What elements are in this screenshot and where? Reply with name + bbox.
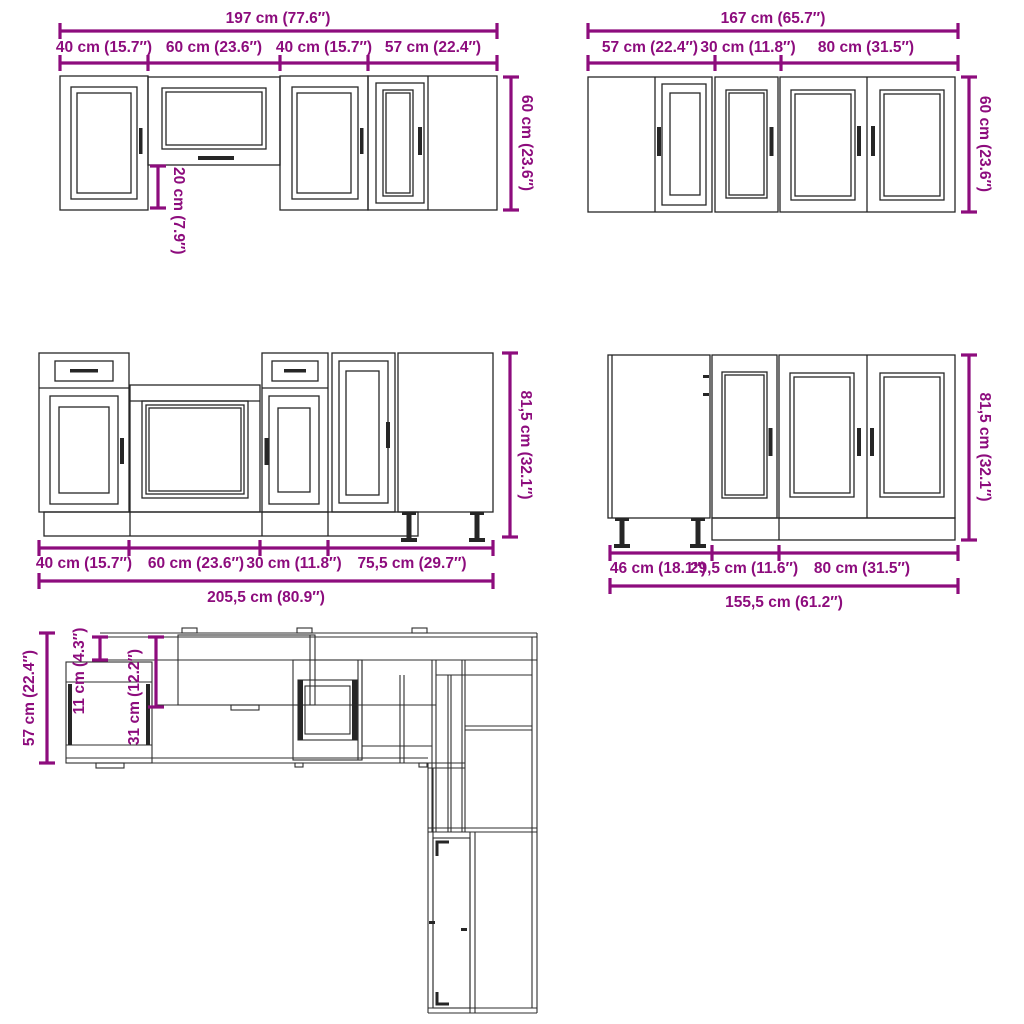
total-width-label: 197 cm (77.6″) (226, 10, 331, 27)
door-handle (386, 422, 390, 448)
base-corner-blind-panel (608, 355, 710, 518)
wall-corner-cabinet-outline (368, 76, 497, 210)
door-handle (360, 128, 364, 154)
door-handle (769, 428, 773, 456)
plinth (712, 518, 955, 540)
plan-wall-cabinet-60 (178, 635, 315, 705)
base-run-right-dimensions: 46 cm (18.1″) 29,5 cm (11.6″) 80 cm (31.… (610, 355, 993, 611)
segment-width-label: 40 cm (15.7″) (276, 39, 372, 56)
door-handle (418, 127, 422, 155)
door-handle (871, 126, 875, 156)
base-run-right-cabinets (608, 355, 955, 548)
door-handle (857, 126, 861, 156)
wall-cabinet-60-outline (148, 77, 280, 165)
door-handle (657, 127, 661, 156)
wall-cabinet-40b-outline (280, 76, 368, 210)
flap-handle (198, 156, 234, 160)
door-handle (139, 128, 143, 154)
segment-width-label: 30 cm (11.8″) (246, 555, 341, 572)
segment-width-label: 75,5 cm (29.7″) (357, 555, 466, 572)
door-handle (870, 428, 874, 456)
drawer-handle (70, 369, 98, 373)
wall-corner-cabinet-outline (588, 77, 712, 212)
height-label: 60 cm (23.6″) (976, 96, 993, 192)
segment-width-label: 40 cm (15.7″) (36, 555, 132, 572)
plan-wall-depth-label: 31 cm (12.2″) (126, 649, 143, 745)
under-cabinet-gap-label: 20 cm (7.9″) (170, 167, 187, 255)
door-handle (265, 438, 269, 465)
wall-run-left-cabinets (60, 76, 497, 210)
floor-plan-dimensions: 57 cm (22.4″) 11 cm (4.3″) 31 cm (12.2″) (21, 628, 164, 763)
plan-wall-offset-label: 11 cm (4.3″) (71, 628, 88, 715)
segment-width-label: 29,5 cm (11.6″) (690, 560, 798, 577)
plan-depth-label: 57 cm (22.4″) (21, 650, 38, 746)
segment-width-label: 60 cm (23.6″) (148, 555, 244, 572)
door-handle (120, 438, 124, 464)
wall-run-right-cabinets (588, 77, 955, 212)
segment-width-label: 57 cm (22.4″) (385, 39, 481, 56)
base-run-left-dimensions: 40 cm (15.7″) 60 cm (23.6″) 30 cm (11.8″… (36, 353, 534, 606)
drawer-handle (284, 369, 306, 373)
height-label: 60 cm (23.6″) (518, 95, 535, 191)
segment-width-label: 40 cm (15.7″) (56, 39, 152, 56)
plan-bottom-cabinet-door (433, 838, 470, 1008)
segment-width-label: 60 cm (23.6″) (166, 39, 262, 56)
height-label: 81,5 cm (32.1″) (517, 390, 534, 499)
total-width-label: 205,5 cm (80.9″) (207, 589, 325, 606)
total-width-label: 155,5 cm (61.2″) (725, 594, 843, 611)
wall-cabinet-40-outline (60, 76, 148, 210)
door-handle (770, 127, 774, 156)
height-label: 81,5 cm (32.1″) (976, 392, 993, 501)
base-cabinet-door-outline (332, 353, 395, 512)
base-corner-blind-panel (398, 353, 493, 512)
adjustable-feet (614, 518, 706, 548)
plinth (44, 512, 418, 536)
diagram-canvas: 197 cm (77.6″) 40 cm (15.7″) 60 cm (23.6… (0, 0, 1024, 1024)
total-width-label: 167 cm (65.7″) (721, 10, 826, 27)
segment-width-label: 30 cm (11.8″) (700, 39, 795, 56)
segment-width-label: 80 cm (31.5″) (814, 560, 910, 577)
base-cabinet-40-outline (39, 353, 129, 512)
adjustable-feet (401, 512, 485, 542)
segment-width-label: 80 cm (31.5″) (818, 39, 914, 56)
base-run-left-cabinets (39, 353, 493, 542)
wall-run-left-dimensions: 197 cm (77.6″) 40 cm (15.7″) 60 cm (23.6… (56, 10, 535, 255)
kitchen-cabinet-dimension-diagram: 197 cm (77.6″) 40 cm (15.7″) 60 cm (23.6… (0, 0, 1024, 1024)
wall-cabinet-30-outline (715, 77, 778, 212)
door-handle (857, 428, 861, 456)
segment-width-label: 57 cm (22.4″) (602, 39, 698, 56)
plan-base-cabinet-30 (293, 660, 362, 760)
